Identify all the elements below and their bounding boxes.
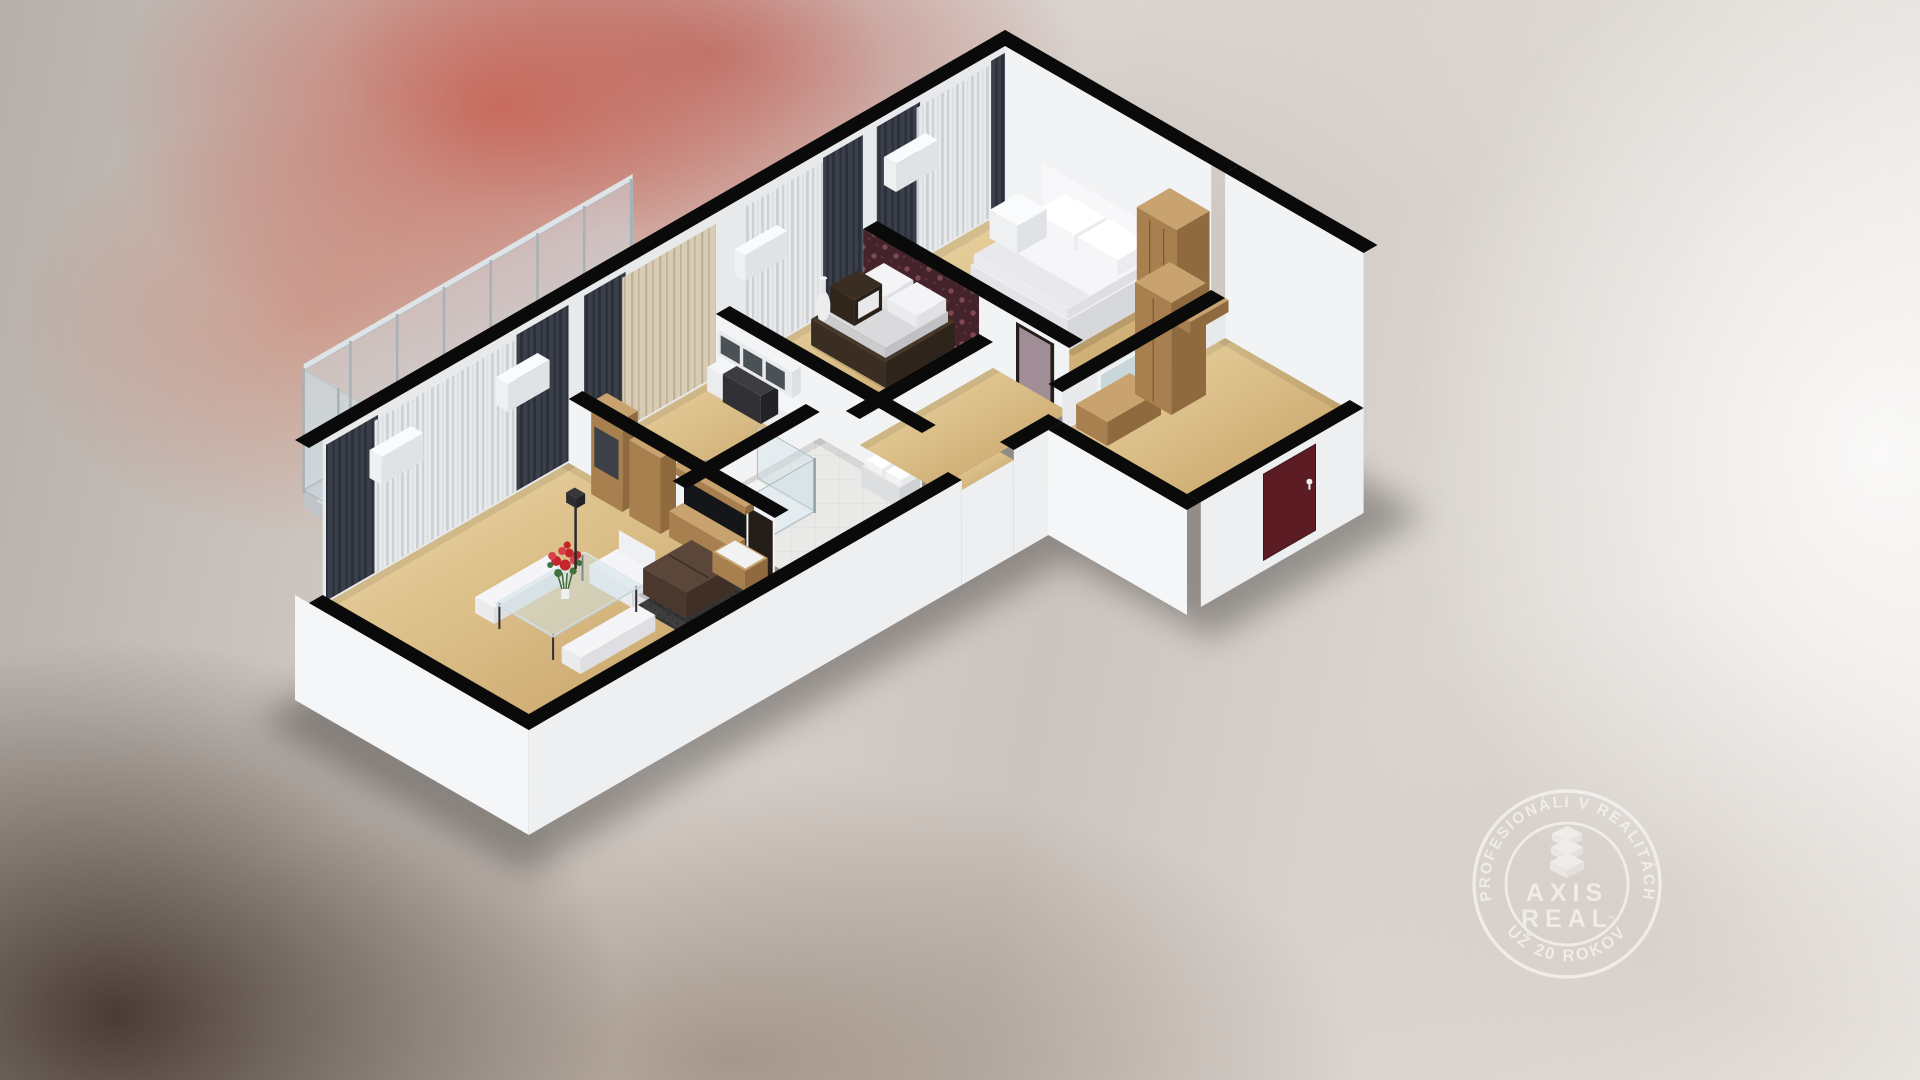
screenshot-stage: PROFESIONÁLI V REALITÁCH UŽ 20 ROKOV AXI… [0, 0, 1920, 1080]
floorplan-3d-render [0, 0, 1920, 1080]
door-handle [1306, 479, 1312, 485]
